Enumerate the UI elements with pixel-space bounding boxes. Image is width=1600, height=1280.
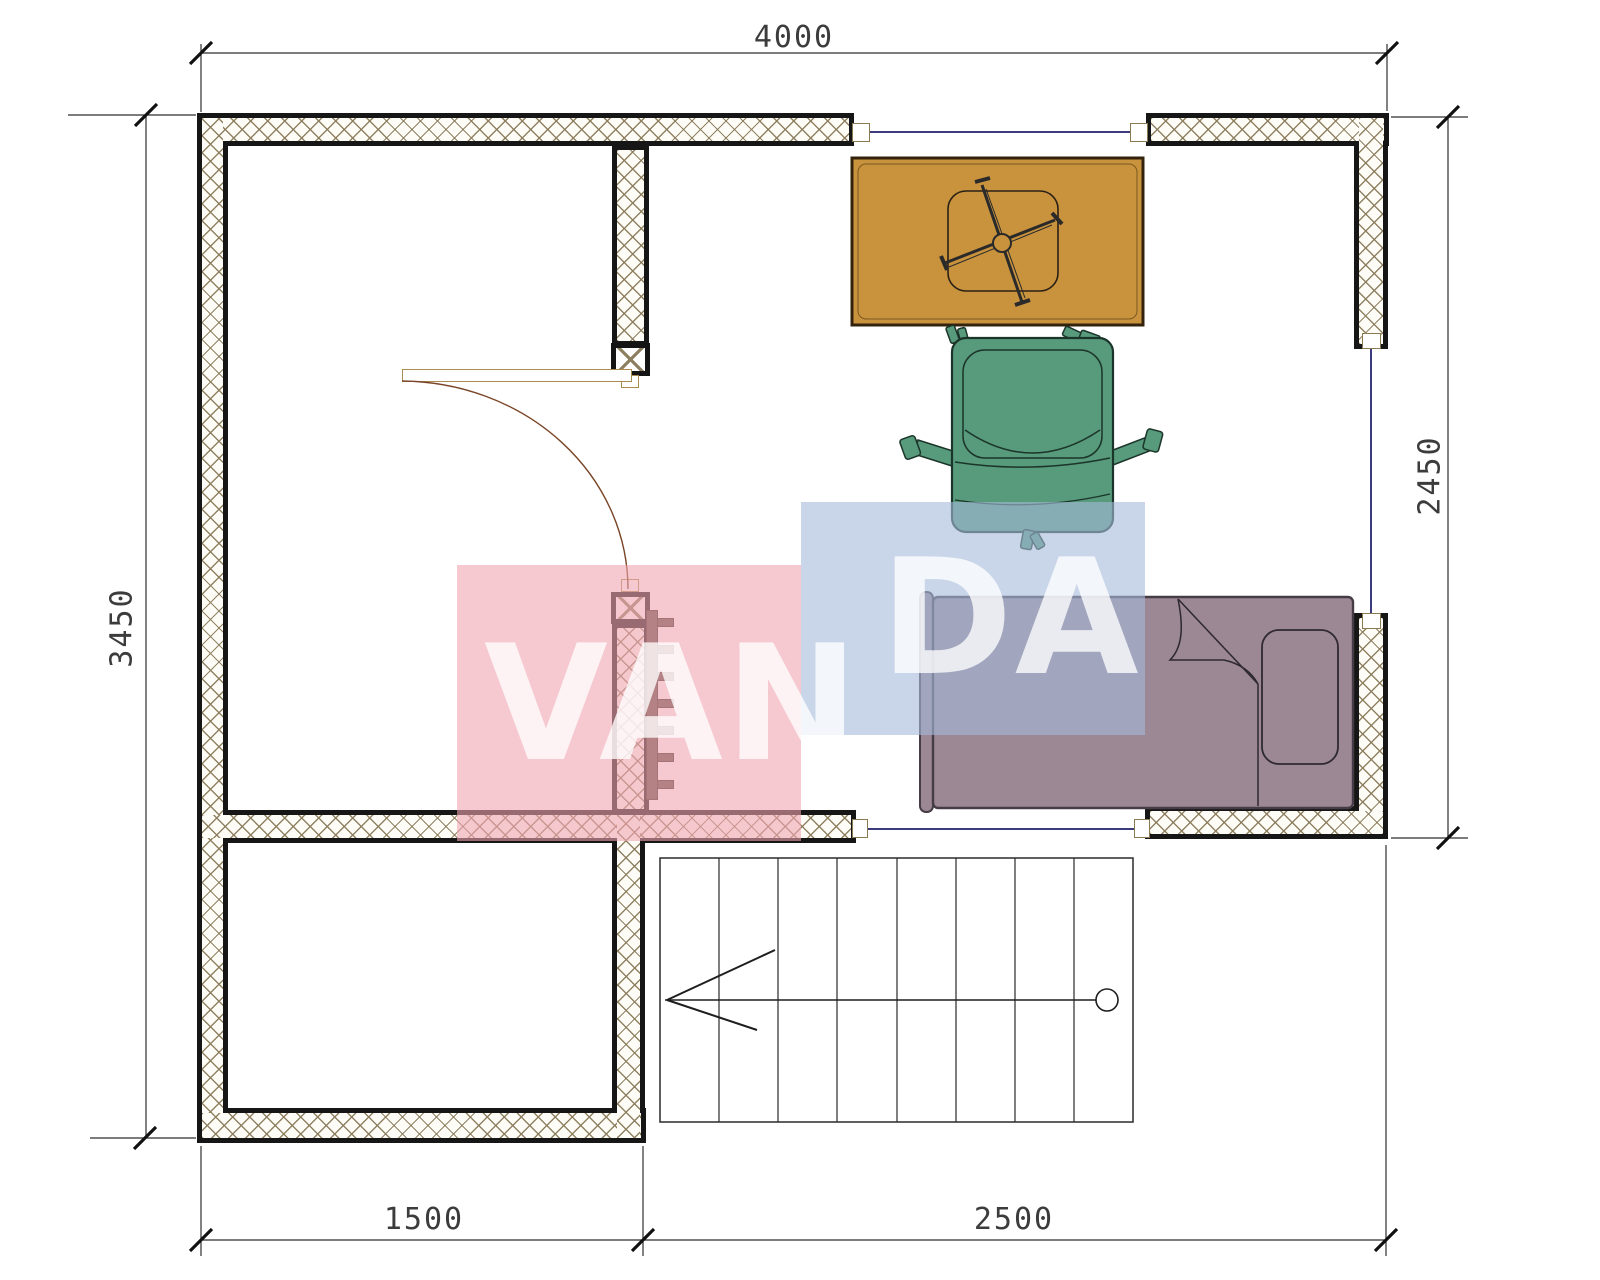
dim-bottom-left: 1500 bbox=[354, 1202, 494, 1237]
door-leaf bbox=[402, 369, 632, 382]
hatch-right-upper bbox=[1359, 118, 1383, 344]
window-connector bbox=[1130, 123, 1148, 142]
window-top-line bbox=[869, 131, 1132, 133]
window-connector bbox=[852, 819, 868, 838]
window-right-line bbox=[1370, 349, 1372, 613]
door-swing-arc bbox=[402, 381, 628, 589]
hatch-bottom-right bbox=[1150, 811, 1383, 834]
hatch-right-lower bbox=[1359, 618, 1383, 833]
stairs bbox=[660, 858, 1133, 1122]
desk bbox=[852, 158, 1143, 325]
window-connector bbox=[1134, 819, 1150, 838]
hatch-bottom bbox=[202, 1113, 641, 1138]
floor-plan-canvas: 4000 3450 2450 1500 2500 VAN DA bbox=[0, 0, 1600, 1280]
dim-bottom-right: 2500 bbox=[944, 1202, 1084, 1237]
chair-base-star bbox=[941, 178, 1062, 305]
bed-pillow bbox=[1262, 630, 1338, 764]
stairs-direction-arrow bbox=[665, 950, 1118, 1030]
window-bottom-line bbox=[868, 828, 1134, 830]
window-connector bbox=[1362, 613, 1381, 629]
dim-right: 2450 bbox=[1413, 406, 1448, 546]
chair-caster-icon bbox=[1062, 326, 1086, 344]
hatch-left bbox=[202, 118, 223, 1138]
dim-top: 4000 bbox=[724, 20, 864, 55]
chair-caster-icon bbox=[957, 327, 969, 344]
hatch-interior-top bbox=[617, 150, 644, 341]
blanket-fold bbox=[1178, 599, 1258, 684]
hatch-top-right bbox=[1151, 118, 1384, 141]
hatch-top-left bbox=[202, 118, 849, 141]
chair-armrest-left bbox=[914, 440, 956, 466]
chair-caster-icon bbox=[1079, 330, 1101, 345]
watermark-text-right: DA bbox=[880, 538, 1141, 698]
hatch-middle-vertical-lower bbox=[617, 815, 640, 1138]
window-connector bbox=[852, 123, 870, 142]
window-connector bbox=[1362, 333, 1381, 349]
chair-caster-icon bbox=[946, 325, 960, 344]
dim-left: 3450 bbox=[105, 558, 140, 698]
chair-armrest-right bbox=[1108, 437, 1152, 465]
watermark-text-left: VAN bbox=[484, 624, 861, 784]
